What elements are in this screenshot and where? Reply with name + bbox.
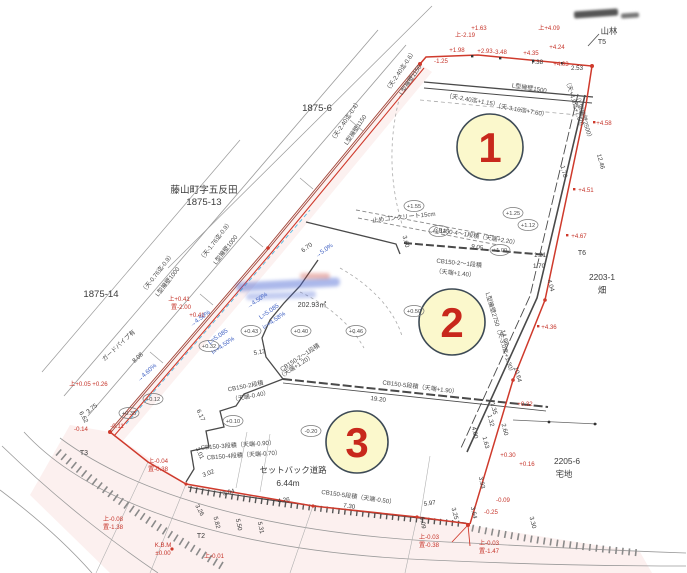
elev: 上-0.01 xyxy=(204,552,225,560)
dim: 1.32 xyxy=(486,414,496,428)
dim: 3.60 xyxy=(401,235,411,249)
benchmark-value: ±0.00 xyxy=(155,550,171,557)
elev: +4.51 xyxy=(578,187,594,194)
lot-circle-3: 3 xyxy=(326,411,388,473)
elev: +0.32 xyxy=(517,401,533,408)
dim: 19.20 xyxy=(370,395,387,404)
elev: -0.25 xyxy=(484,509,499,516)
circled-value: +0.43 xyxy=(244,329,258,335)
point-t2: T2 xyxy=(197,533,205,540)
site-plan-page: 1 2 3 1875-6 藤山町字五反田 1875-13 1875-14 山林 … xyxy=(0,0,687,573)
elev: 上-2.19 xyxy=(455,31,476,39)
dim: 1.70 xyxy=(533,263,546,270)
circled-value: +0.10 xyxy=(226,419,240,425)
parcel-2203-1: 2203-1 xyxy=(589,272,615,282)
elev: -0.09 xyxy=(496,497,511,504)
parcel-1875-14: 1875-14 xyxy=(83,289,119,300)
circled-value: +0.46 xyxy=(349,329,363,335)
lot-number-2: 2 xyxy=(440,299,463,346)
point-t5: T5 xyxy=(598,39,606,46)
dim: 3.75 xyxy=(85,402,99,415)
guard-pipe-label: ガードパイプ有 xyxy=(100,328,137,363)
circled-value: +1.14 xyxy=(432,229,446,235)
site-plan-svg: 1 2 3 1875-6 藤山町字五反田 1875-13 1875-14 山林 … xyxy=(0,0,687,573)
parcel-town-name: 藤山町字五反田 xyxy=(170,184,237,196)
parcel-1875-6: 1875-6 xyxy=(302,103,332,114)
circled-value: +0.12 xyxy=(146,397,160,403)
elev: 上+0.05 xyxy=(69,380,91,388)
wall-note: 止めコンクリート15cm xyxy=(372,210,436,225)
circled-value: +0.35 xyxy=(122,411,136,417)
setback-road-label: セットバック道路 xyxy=(260,465,328,475)
elev: +4.35 xyxy=(523,50,539,57)
parcel-2203-1-type: 畑 xyxy=(598,285,606,295)
elev: +4.03 xyxy=(553,61,569,68)
setback-road-width: 6.44m xyxy=(276,478,299,488)
lot-number-1: 1 xyxy=(478,124,501,171)
circled-value: +1.25 xyxy=(506,211,520,217)
dim: 12.46 xyxy=(595,153,606,170)
lot-number-3: 3 xyxy=(345,419,368,466)
dim: 3.30 xyxy=(528,516,538,530)
elev: 上-0.03 xyxy=(479,539,500,547)
benchmark-label: K.B.M xyxy=(155,542,172,549)
elev: +0.26 xyxy=(92,381,108,388)
dim: 1.63 xyxy=(481,436,491,450)
elev: -1.25 xyxy=(434,58,449,65)
elev: -0.11 xyxy=(110,423,124,430)
dim: 1.78 xyxy=(559,165,569,179)
elev: -0.14 xyxy=(74,426,89,433)
point-t6: T6 xyxy=(578,250,586,257)
elev: +2.93 xyxy=(477,48,493,55)
elev: +4.58 xyxy=(596,120,612,127)
circled-value: +1.55 xyxy=(407,204,421,210)
point-t3: T3 xyxy=(80,450,88,457)
dim: 3.25 xyxy=(450,507,460,521)
elev: 置-2.00 xyxy=(171,304,192,311)
dim: 7.38 xyxy=(531,59,544,66)
dim: 3.64 xyxy=(469,506,478,520)
neighbour-boundary-lines xyxy=(42,6,432,416)
elev: -3.48 xyxy=(493,49,508,56)
wall-note: CB150-2～1段積 xyxy=(436,257,482,270)
elev: 置-1.47 xyxy=(479,548,500,555)
dim: 6.17 xyxy=(195,408,207,422)
dim: 9.05 xyxy=(471,243,485,252)
circled-value: +1.12 xyxy=(521,223,535,229)
elev: 上-0.03 xyxy=(419,533,440,541)
dim: 5.13 xyxy=(253,348,267,357)
dim: 5.97 xyxy=(423,499,436,508)
parcel-2205-6: 2205-6 xyxy=(554,456,580,466)
slope-note: →5.0% xyxy=(314,242,335,260)
wall-note: （天端+1.40） xyxy=(435,267,475,279)
elev: +0.16 xyxy=(519,461,535,468)
circled-value: +1.00 xyxy=(493,248,507,254)
elev: 置-0.38 xyxy=(148,466,169,473)
parcel-2205-6-type: 宅地 xyxy=(556,469,573,479)
elev: +1.63 xyxy=(471,25,487,32)
dim: 3.93 xyxy=(477,476,486,490)
redacted-label xyxy=(574,8,639,18)
dim: 2.53 xyxy=(571,65,584,72)
dim: 2.60 xyxy=(500,423,510,437)
elev: 上-0.08 xyxy=(103,515,124,523)
elev: 上+4.09 xyxy=(538,24,560,32)
wall-note: L型擁壁1500 xyxy=(511,81,548,95)
circled-value: +0.40 xyxy=(294,329,308,335)
elev: +1.98 xyxy=(449,47,465,54)
dim: 8.08 xyxy=(131,351,145,365)
dim: 1.21 xyxy=(534,252,547,259)
elev: 上+0.41 xyxy=(168,295,190,303)
circled-value: -0.20 xyxy=(305,429,318,435)
circled-value: +0.50 xyxy=(407,309,421,315)
elev: 置-0.38 xyxy=(419,542,440,549)
parcel-forest: 山林 xyxy=(601,26,618,36)
parcel-1875-13: 1875-13 xyxy=(186,197,221,208)
elev: +4.36 xyxy=(541,324,557,331)
elev: +0.30 xyxy=(500,452,516,459)
wall-note: CB150-5段積（天端-0.50） xyxy=(321,488,396,506)
lot-circle-1: 1 xyxy=(457,114,523,180)
lot-circle-2: 2 xyxy=(419,289,485,355)
elev: +4.67 xyxy=(571,233,587,240)
dim: 3.02 xyxy=(202,468,216,479)
elev: 置-1.38 xyxy=(103,524,124,531)
dim: 6.70 xyxy=(300,241,314,254)
elev: +4.24 xyxy=(549,44,565,51)
lot2-area: 202.93㎡ xyxy=(298,301,326,309)
elev: 上-0.04 xyxy=(148,457,169,465)
dim: 4.00 xyxy=(470,426,479,440)
